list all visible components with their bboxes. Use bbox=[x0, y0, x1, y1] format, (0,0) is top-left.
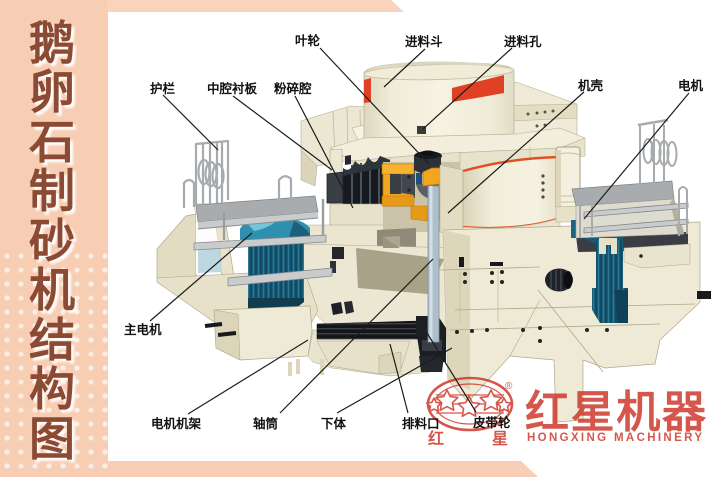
svg-text:中腔衬板: 中腔衬板 bbox=[207, 81, 258, 96]
svg-text:机壳: 机壳 bbox=[578, 78, 604, 93]
svg-text:电机: 电机 bbox=[678, 78, 704, 93]
svg-text:星: 星 bbox=[492, 430, 508, 448]
svg-text:结: 结 bbox=[29, 314, 75, 366]
svg-text:粉碎腔: 粉碎腔 bbox=[274, 81, 312, 96]
svg-text:HONGXING MACHINERY: HONGXING MACHINERY bbox=[527, 432, 702, 444]
svg-text:砂: 砂 bbox=[29, 215, 75, 267]
svg-text:图: 图 bbox=[29, 413, 75, 465]
svg-text:制: 制 bbox=[29, 165, 75, 217]
svg-text:®: ® bbox=[505, 381, 513, 392]
svg-text:电机机架: 电机机架 bbox=[151, 416, 202, 431]
svg-text:下体: 下体 bbox=[321, 416, 347, 431]
svg-text:轴筒: 轴筒 bbox=[253, 416, 278, 431]
svg-text:护栏: 护栏 bbox=[150, 81, 176, 96]
svg-text:机: 机 bbox=[29, 264, 75, 316]
svg-text:石: 石 bbox=[29, 116, 75, 168]
svg-text:红星机器: 红星机器 bbox=[525, 388, 707, 437]
svg-text:主电机: 主电机 bbox=[124, 322, 162, 337]
svg-text:鹅: 鹅 bbox=[29, 17, 75, 69]
svg-text:皮带轮: 皮带轮 bbox=[472, 415, 511, 430]
svg-text:红: 红 bbox=[428, 429, 444, 448]
svg-text:叶轮: 叶轮 bbox=[295, 33, 321, 48]
svg-text:卵: 卵 bbox=[29, 66, 75, 118]
svg-text:进料孔: 进料孔 bbox=[504, 34, 542, 49]
svg-text:进料斗: 进料斗 bbox=[405, 34, 443, 49]
svg-text:构: 构 bbox=[29, 363, 75, 415]
svg-text:排料口: 排料口 bbox=[402, 416, 440, 431]
